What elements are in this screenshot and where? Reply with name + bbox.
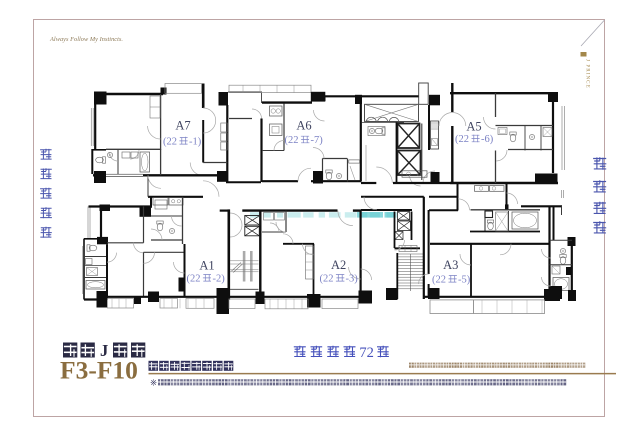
- svg-text:A6: A6: [296, 119, 311, 133]
- svg-text:A2: A2: [331, 258, 346, 272]
- svg-text:F3-F10: F3-F10: [60, 356, 138, 385]
- svg-text:(22: (22: [432, 275, 446, 286]
- svg-text:A5: A5: [466, 120, 481, 134]
- svg-text:(22: (22: [320, 274, 334, 285]
- svg-text:-7): -7): [311, 135, 324, 146]
- svg-text:-1): -1): [189, 137, 202, 148]
- svg-text:※: ※: [150, 378, 157, 388]
- svg-text:A3: A3: [443, 258, 458, 272]
- svg-text:(22: (22: [163, 137, 177, 148]
- svg-text:A7: A7: [175, 119, 190, 133]
- svg-text:Always Follow My Instincts.: Always Follow My Instincts.: [49, 36, 123, 43]
- svg-text:-6): -6): [481, 134, 494, 145]
- svg-text:(22: (22: [187, 274, 201, 285]
- svg-text:A1: A1: [199, 259, 214, 273]
- svg-text:72: 72: [359, 345, 374, 361]
- svg-text:-3): -3): [346, 274, 359, 285]
- svg-text:J PRINCE: J PRINCE: [585, 59, 590, 89]
- svg-text:(22: (22: [285, 135, 299, 146]
- svg-text:(22: (22: [455, 134, 469, 145]
- svg-text:-5): -5): [458, 275, 471, 286]
- svg-text:-2): -2): [213, 274, 226, 285]
